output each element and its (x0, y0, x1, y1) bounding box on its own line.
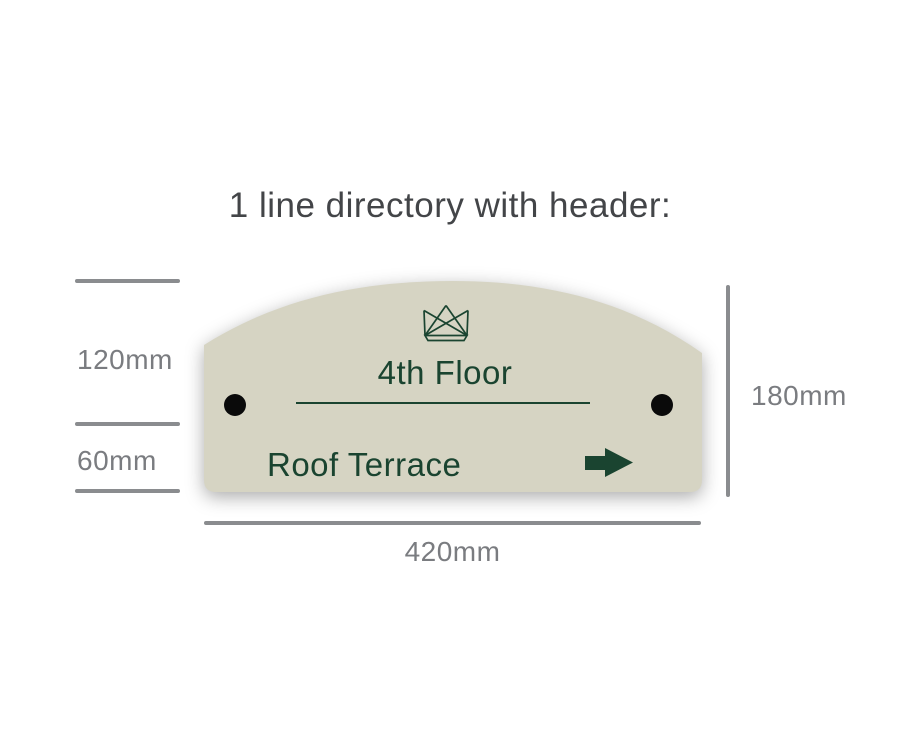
sign-header-text: 4th Floor (204, 354, 686, 392)
dimension-line-width (204, 521, 701, 525)
mounting-hole-left (224, 394, 246, 416)
dimension-label-width: 420mm (204, 536, 701, 568)
arrow-right-icon (585, 447, 634, 478)
sign-panel: 4th Floor Roof Terrace (204, 281, 702, 492)
dimension-line-sign-bottom (75, 489, 180, 493)
dimension-line-header-top (75, 279, 180, 283)
mounting-hole-right (651, 394, 673, 416)
page-title: 1 line directory with header: (0, 186, 900, 226)
dimension-label-total-height: 180mm (751, 380, 847, 412)
crown-icon (421, 304, 471, 342)
dimension-label-row-height: 60mm (77, 445, 157, 477)
sign-row-text: Roof Terrace (267, 446, 461, 484)
dimension-line-total-height (726, 285, 730, 497)
dimension-label-header-height: 120mm (77, 344, 173, 376)
page: 1 line directory with header: 4th Floor … (0, 0, 900, 750)
dimension-line-header-bottom (75, 422, 180, 426)
sign-divider-line (296, 402, 590, 404)
